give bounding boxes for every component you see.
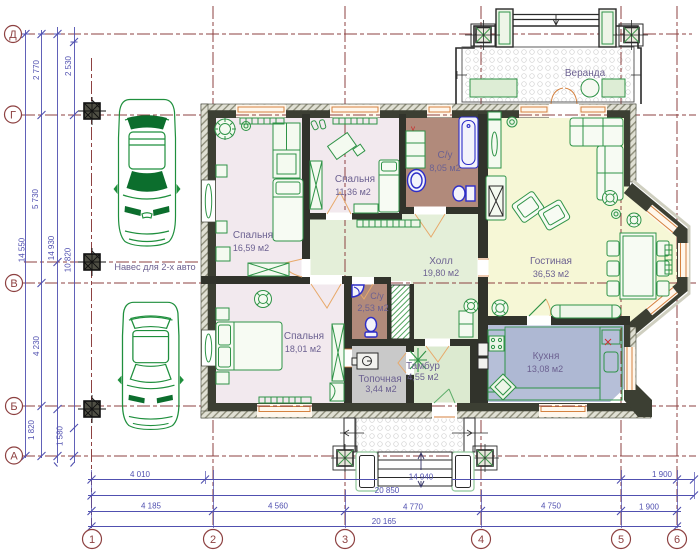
svg-text:Холл: Холл bbox=[429, 256, 453, 267]
svg-text:4 770: 4 770 bbox=[403, 503, 424, 512]
svg-text:6: 6 bbox=[674, 534, 680, 546]
svg-text:Г: Г bbox=[10, 110, 16, 122]
svg-text:1: 1 bbox=[89, 534, 95, 546]
svg-text:Навес для 2-х авто: Навес для 2-х авто bbox=[114, 262, 195, 272]
svg-text:36,53 м2: 36,53 м2 bbox=[533, 269, 569, 279]
svg-text:1 900: 1 900 bbox=[652, 470, 673, 479]
svg-text:2: 2 bbox=[210, 534, 216, 546]
svg-text:С/у: С/у bbox=[438, 150, 453, 161]
svg-text:3,44 м2: 3,44 м2 bbox=[365, 384, 396, 394]
svg-text:Б: Б bbox=[10, 401, 17, 413]
svg-text:В: В bbox=[10, 278, 17, 290]
svg-text:20 850: 20 850 bbox=[375, 486, 400, 495]
svg-text:4,55 м2: 4,55 м2 bbox=[407, 372, 438, 382]
svg-text:16,59 м2: 16,59 м2 bbox=[233, 243, 269, 253]
svg-text:2 770: 2 770 bbox=[32, 59, 41, 80]
svg-text:4 230: 4 230 bbox=[32, 335, 41, 356]
svg-text:А: А bbox=[10, 451, 18, 463]
svg-text:Тамбур: Тамбур bbox=[406, 360, 440, 372]
svg-text:19,80 м2: 19,80 м2 bbox=[423, 268, 459, 278]
svg-text:1 900: 1 900 bbox=[639, 503, 660, 512]
svg-text:4 185: 4 185 bbox=[141, 502, 162, 511]
svg-text:2 530: 2 530 bbox=[64, 55, 73, 76]
svg-text:С/у: С/у bbox=[370, 291, 384, 301]
svg-text:14 940: 14 940 bbox=[409, 473, 434, 482]
svg-text:Спальня: Спальня bbox=[233, 230, 273, 241]
svg-text:5 730: 5 730 bbox=[31, 188, 40, 209]
svg-text:18,01 м2: 18,01 м2 bbox=[285, 344, 321, 354]
svg-text:4: 4 bbox=[478, 534, 484, 546]
svg-text:11,36 м2: 11,36 м2 bbox=[335, 187, 371, 197]
svg-text:Кухня: Кухня bbox=[533, 351, 560, 362]
svg-text:10 820: 10 820 bbox=[64, 247, 73, 272]
svg-text:14 550: 14 550 bbox=[18, 237, 27, 262]
svg-text:Д: Д bbox=[9, 29, 17, 41]
svg-text:Спальня: Спальня bbox=[284, 331, 324, 342]
svg-text:13,08 м2: 13,08 м2 bbox=[527, 364, 563, 374]
svg-text:Спальня: Спальня bbox=[335, 174, 375, 185]
svg-text:Веранда: Веранда bbox=[565, 68, 606, 79]
svg-text:20 165: 20 165 bbox=[372, 517, 397, 526]
svg-text:Гостиная: Гостиная bbox=[530, 256, 572, 267]
svg-text:1 820: 1 820 bbox=[27, 419, 36, 440]
svg-text:1 580: 1 580 bbox=[56, 425, 65, 446]
svg-text:4 560: 4 560 bbox=[268, 502, 289, 511]
svg-text:14 930: 14 930 bbox=[47, 235, 56, 260]
svg-text:4 750: 4 750 bbox=[541, 502, 562, 511]
svg-text:2,53 м2: 2,53 м2 bbox=[357, 303, 388, 313]
svg-text:5: 5 bbox=[618, 534, 624, 546]
svg-text:3: 3 bbox=[342, 534, 348, 546]
svg-text:4 010: 4 010 bbox=[130, 470, 151, 479]
svg-text:8,05 м2: 8,05 м2 bbox=[429, 163, 460, 173]
